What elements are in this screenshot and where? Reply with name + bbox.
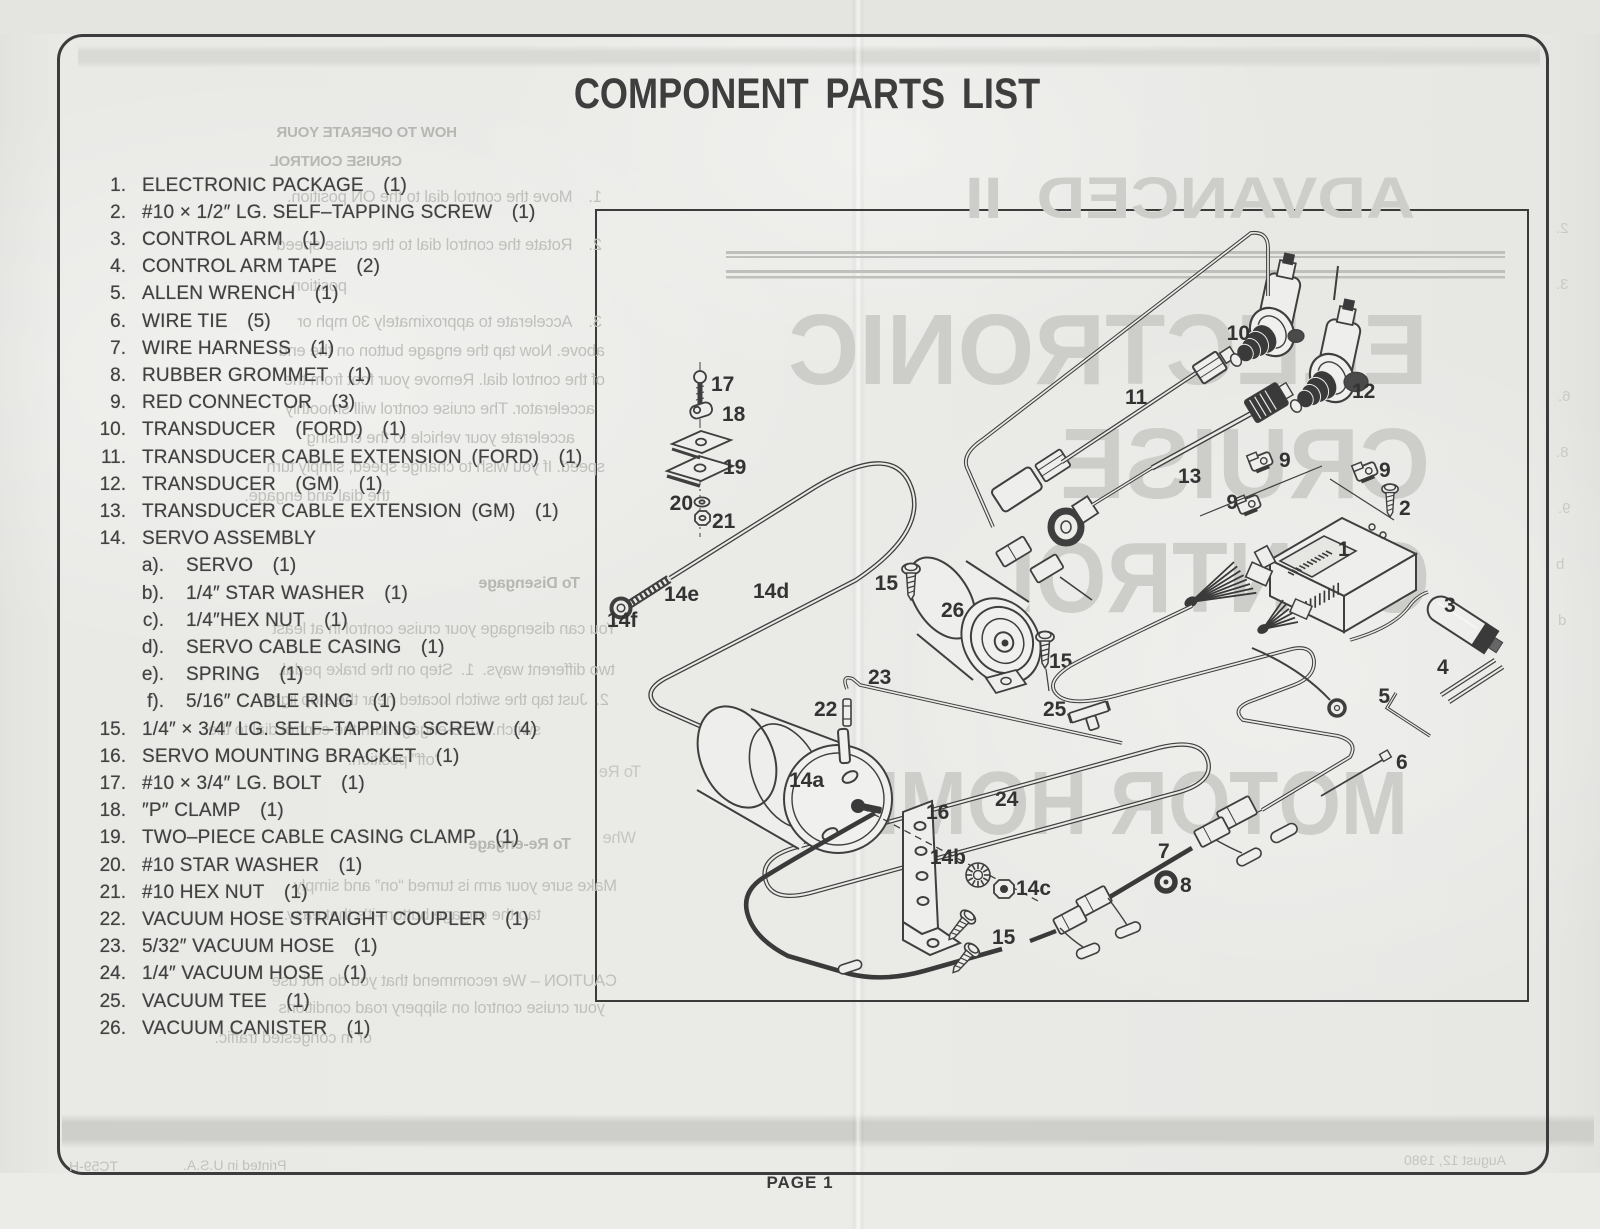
svg-text:8: 8 xyxy=(1180,874,1192,897)
svg-text:24: 24 xyxy=(995,788,1019,811)
svg-text:17: 17 xyxy=(711,373,734,396)
svg-text:20: 20 xyxy=(670,492,693,515)
svg-text:18: 18 xyxy=(722,403,746,426)
svg-text:14b: 14b xyxy=(930,846,966,869)
svg-text:9: 9 xyxy=(1379,459,1391,482)
svg-text:9: 9 xyxy=(1279,449,1291,472)
svg-text:21: 21 xyxy=(712,510,736,533)
svg-text:14a: 14a xyxy=(789,769,824,792)
svg-text:23: 23 xyxy=(868,666,891,689)
svg-text:12: 12 xyxy=(1352,380,1375,403)
svg-text:11: 11 xyxy=(1125,386,1148,409)
svg-text:15: 15 xyxy=(1049,650,1073,673)
svg-text:1: 1 xyxy=(1338,538,1350,561)
svg-text:25: 25 xyxy=(1043,698,1067,721)
svg-text:3: 3 xyxy=(1444,594,1456,617)
svg-text:14d: 14d xyxy=(753,580,789,603)
svg-text:10: 10 xyxy=(1227,322,1250,345)
svg-text:4: 4 xyxy=(1437,656,1449,679)
svg-text:26: 26 xyxy=(941,599,964,622)
svg-text:22: 22 xyxy=(814,698,837,721)
svg-text:14f: 14f xyxy=(607,609,638,632)
svg-text:16: 16 xyxy=(926,801,949,824)
svg-text:2: 2 xyxy=(1399,497,1411,520)
svg-text:5: 5 xyxy=(1378,685,1390,708)
svg-text:6: 6 xyxy=(1396,751,1408,774)
svg-text:19: 19 xyxy=(723,456,746,479)
svg-text:13: 13 xyxy=(1178,465,1201,488)
svg-text:14c: 14c xyxy=(1016,877,1051,900)
svg-text:15: 15 xyxy=(992,926,1016,949)
svg-text:7: 7 xyxy=(1158,840,1170,863)
svg-text:15: 15 xyxy=(875,572,899,595)
svg-text:14e: 14e xyxy=(664,583,699,606)
svg-text:ADVANCED II: ADVANCED II xyxy=(965,166,1415,231)
